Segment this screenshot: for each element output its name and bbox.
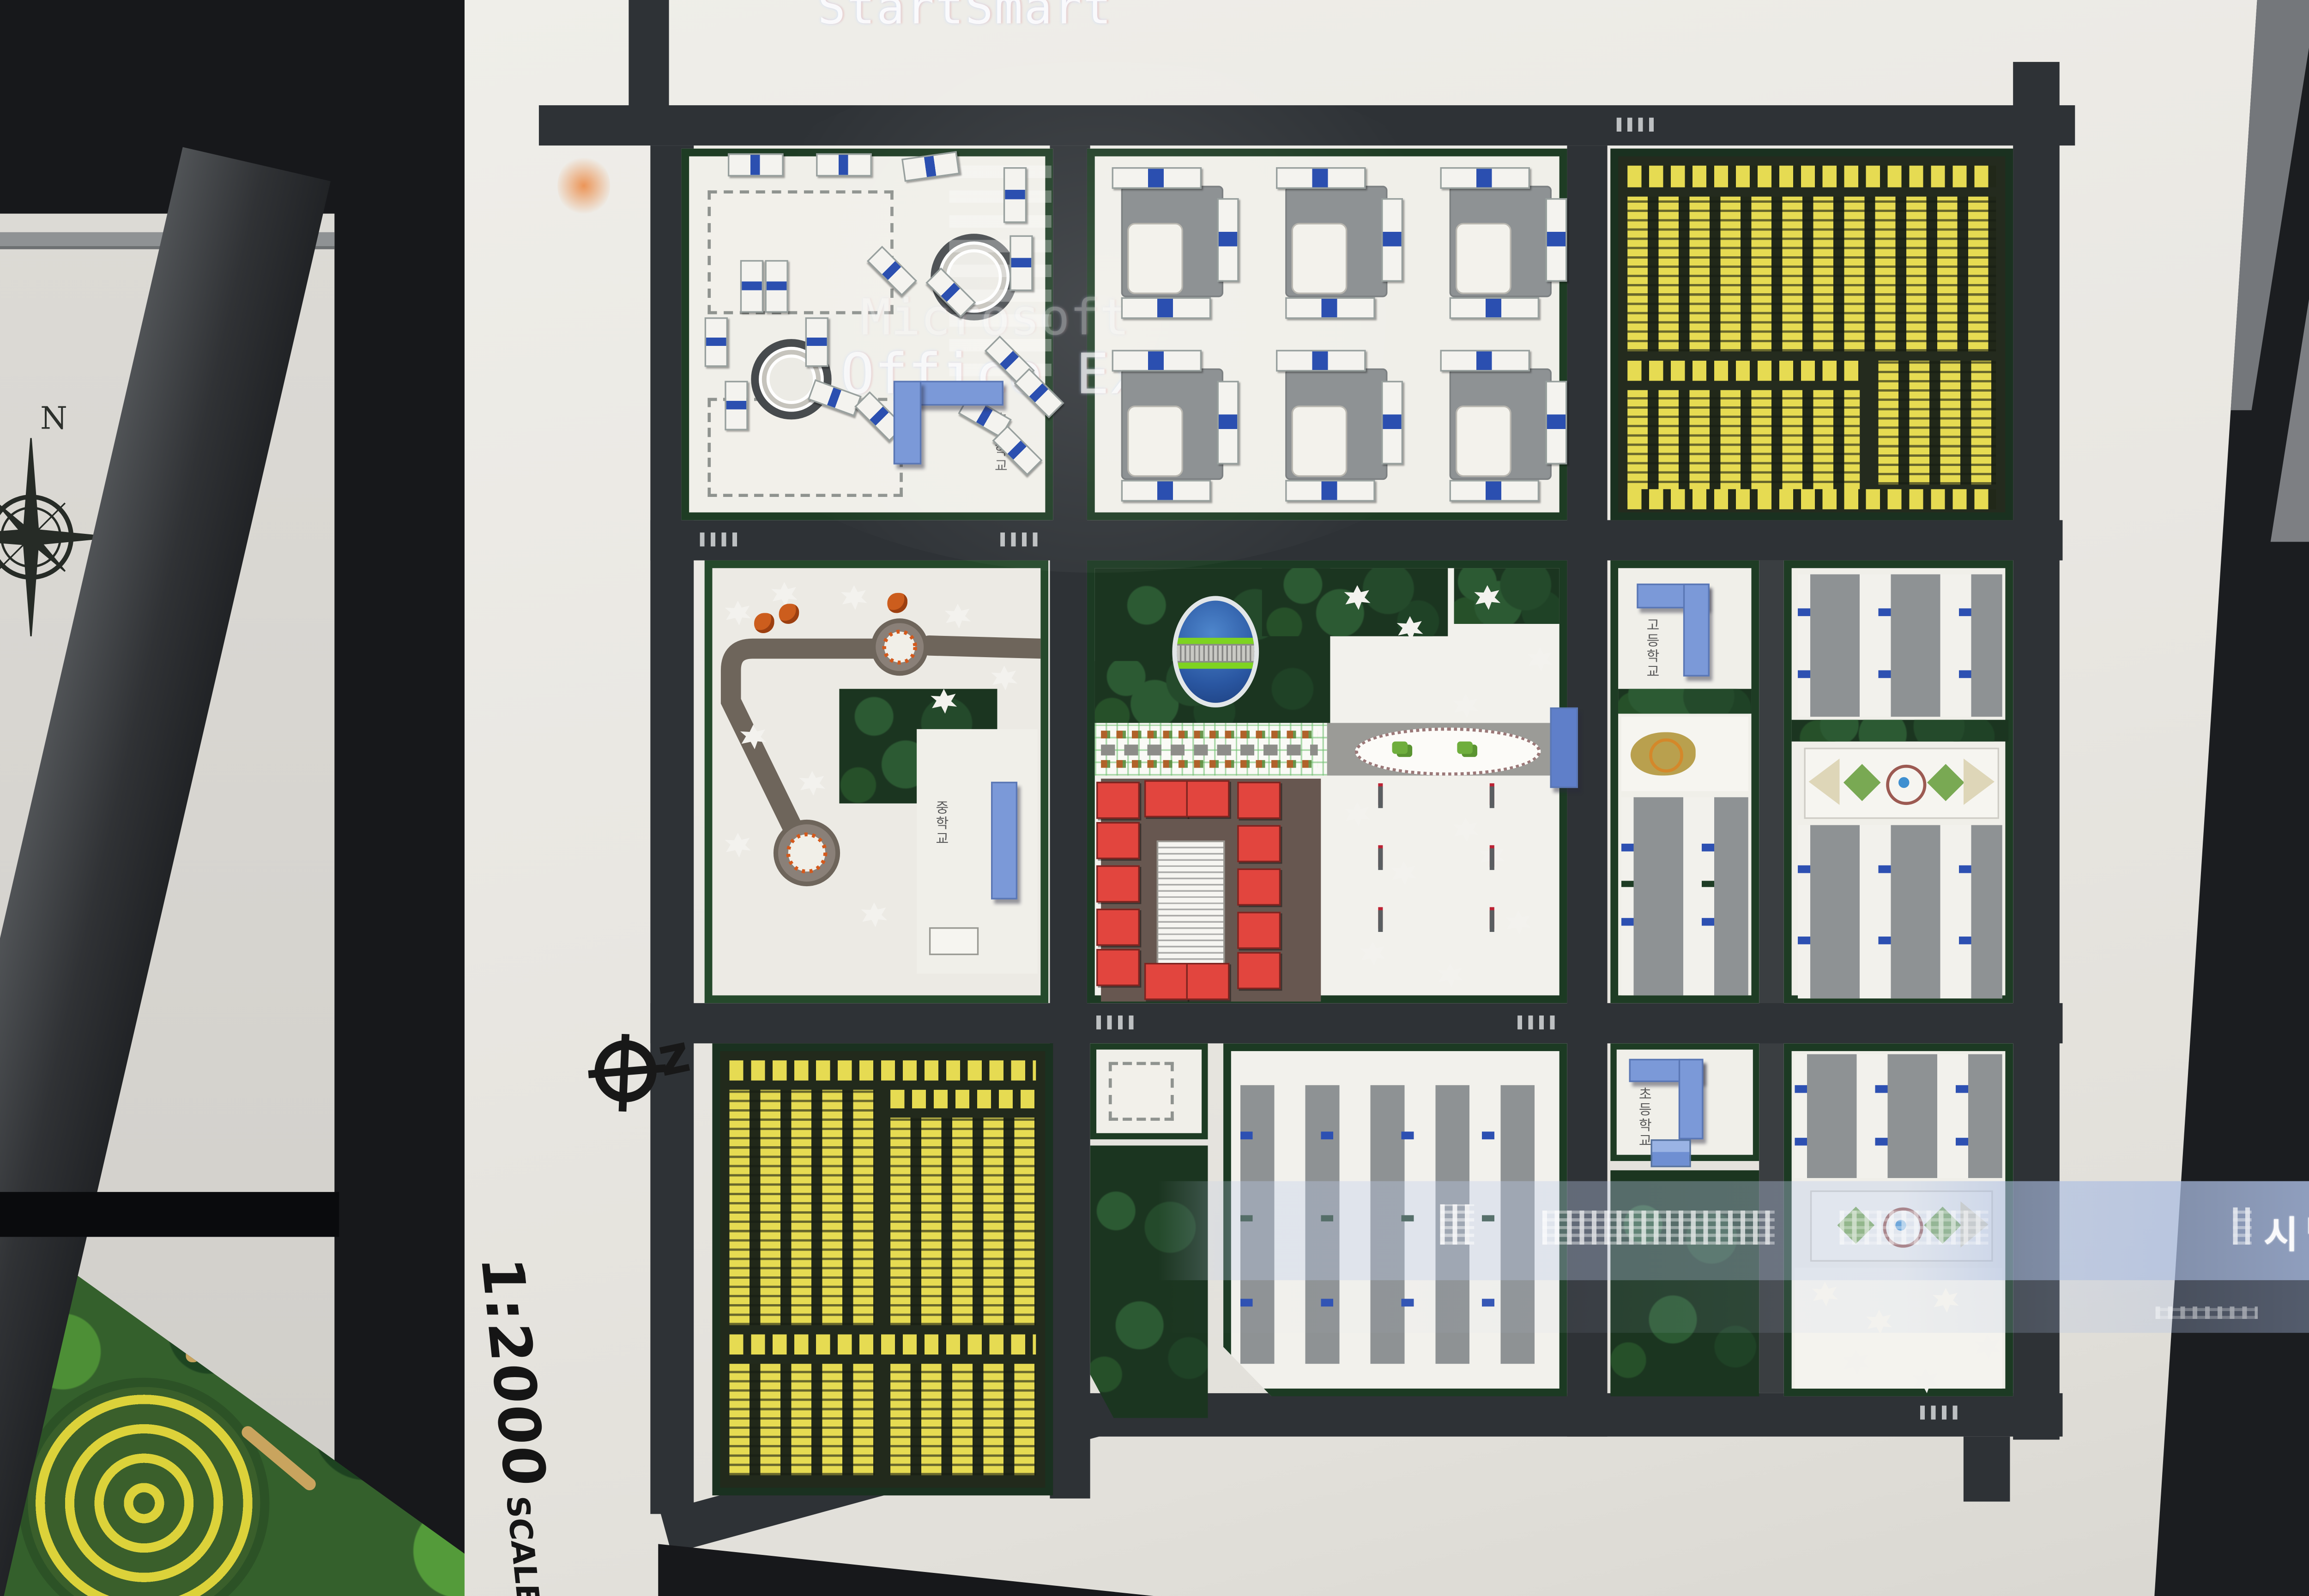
ticker-text: 시발표 <box>2264 1204 2309 1258</box>
red-building <box>1096 949 1140 986</box>
elementary-school-nw-building <box>913 381 1003 406</box>
pond-green-band <box>1174 638 1259 644</box>
housing-row <box>1627 361 1860 381</box>
high-school-label: 고등학교 <box>1643 617 1657 679</box>
projector-lens-glare <box>557 155 610 217</box>
factory-warehouse <box>1112 167 1202 189</box>
ticker-dashes <box>2156 1306 2258 1319</box>
factory-warehouse <box>1381 381 1403 465</box>
red-building <box>1096 865 1140 902</box>
apartments <box>1798 825 2002 998</box>
factory-warehouse <box>1217 198 1239 282</box>
road-stub-bottom-right <box>1964 1437 2010 1502</box>
apartment-balconies <box>1798 937 2002 944</box>
factory-warehouse <box>1450 297 1539 319</box>
red-building <box>1237 825 1281 862</box>
housing-strips <box>1878 361 1996 484</box>
campus-building <box>805 317 828 367</box>
crosswalk <box>1920 1406 1960 1420</box>
factory-warehouse <box>1381 198 1403 282</box>
table-edge <box>0 1192 339 1237</box>
blue-slab-building <box>1550 707 1578 788</box>
ticker-illegible-text <box>1542 1210 1775 1245</box>
ticker-icon <box>1440 1204 1474 1245</box>
lamp-post <box>1378 786 1383 808</box>
central-forest <box>1454 568 1559 624</box>
north-z-mark: z <box>653 1022 695 1088</box>
lamp-post <box>1378 910 1383 932</box>
ticker-illegible-text <box>1840 1210 1989 1245</box>
red-building <box>1186 963 1230 1000</box>
crosswalk <box>700 532 740 546</box>
housing-strips <box>890 1118 1036 1325</box>
small-hatched-building <box>1109 1062 1174 1121</box>
housing-row <box>729 1335 1036 1355</box>
campus-building <box>816 153 872 176</box>
apartment-balconies <box>1798 608 2002 616</box>
plaza-fountain <box>1898 777 1909 788</box>
factory-warehouse <box>1440 350 1529 372</box>
hedge-strip <box>1618 689 1751 714</box>
road-horizontal-2 <box>650 1003 2062 1043</box>
apartment-balconies <box>1798 670 2002 678</box>
blue-gable-building <box>1651 1139 1691 1167</box>
central-pond <box>1172 596 1259 707</box>
factory-courtyard <box>1292 405 1348 477</box>
factory-warehouse <box>1112 350 1202 372</box>
apartment-balconies <box>1798 865 2002 873</box>
north-symbol-icon: z <box>586 1019 713 1127</box>
red-building <box>1237 869 1281 906</box>
housing-strips <box>1627 390 1860 502</box>
lamp-post <box>1378 848 1383 870</box>
playground-lot <box>1621 717 1748 791</box>
boulevard-island <box>1355 727 1541 775</box>
apartment-balconies <box>1795 1085 2002 1093</box>
factory-courtyard <box>1292 223 1348 294</box>
housing-strips <box>729 1090 875 1325</box>
pond-bridge <box>1174 644 1259 662</box>
elementary-school-nw-building <box>894 381 921 465</box>
playground-ring <box>1649 738 1683 773</box>
red-building <box>1237 782 1281 819</box>
school-court <box>929 927 979 955</box>
red-building <box>1237 952 1281 989</box>
apartments <box>1621 797 1748 995</box>
housing-row <box>1627 166 1996 187</box>
block-east-2 <box>1784 560 2013 1003</box>
projection-line1: Microsoft <box>861 288 1129 346</box>
apartment-balconies <box>1621 918 1748 926</box>
campus-building <box>728 153 784 176</box>
crosswalk <box>1617 118 1657 132</box>
factory-warehouse <box>1545 381 1567 465</box>
factory-courtyard <box>1127 405 1183 477</box>
red-building <box>1144 963 1188 1000</box>
plaza-diamond <box>1927 764 1964 801</box>
red-building <box>1237 912 1281 949</box>
red-building <box>1186 780 1230 817</box>
middle-school-label: 중학교 <box>932 800 946 847</box>
high-school-building <box>1683 584 1710 677</box>
apartment-balconies <box>1795 1138 2002 1146</box>
housing-strips <box>890 1364 1036 1475</box>
red-building <box>1096 822 1140 859</box>
scale-word: SCALE <box>499 1496 548 1596</box>
promenade-planters <box>1101 760 1318 768</box>
block-housing-sw <box>712 1043 1053 1495</box>
housing-strips <box>729 1364 875 1475</box>
plaza-triangle <box>1964 759 1995 805</box>
diamond-plaza <box>1804 748 1999 819</box>
housing-row <box>1627 489 1996 509</box>
park-amphitheater-rings <box>28 1387 260 1596</box>
photo-viewport: N <box>0 0 2309 1596</box>
road-bottom <box>1084 1393 2062 1437</box>
lamp-post <box>1490 786 1494 808</box>
factory-courtyard <box>1127 223 1183 294</box>
block-small-lot <box>1090 1043 1208 1139</box>
plaza-diamond <box>1844 764 1881 801</box>
factory-warehouse <box>1440 167 1529 189</box>
campus-building <box>725 381 748 430</box>
apartments <box>1798 574 2002 717</box>
red-building <box>1144 780 1188 817</box>
plaza-triangle <box>1809 759 1840 805</box>
projection-reflection-band-fade <box>1158 1280 2309 1333</box>
block-east-1: 고등학교 <box>1610 560 1759 1003</box>
industrial-blue-ticks <box>1240 1131 1550 1139</box>
promenade <box>1095 723 1327 775</box>
middle-school-building <box>991 782 1017 900</box>
promenade-planters <box>1101 731 1318 738</box>
lamp-post <box>1490 848 1494 870</box>
campus-building <box>765 260 788 313</box>
factory-warehouse <box>1285 480 1375 502</box>
apartment-balconies <box>1621 844 1748 852</box>
factory-warehouse <box>1276 350 1366 372</box>
campus-building <box>705 317 728 367</box>
boulevard <box>1327 723 1575 775</box>
boulevard-planting <box>1392 742 1408 754</box>
campus-building <box>740 260 763 313</box>
factory-warehouse <box>1545 198 1567 282</box>
promenade-median <box>1101 744 1318 755</box>
campus-building <box>1009 236 1033 291</box>
crosswalk <box>1096 1016 1136 1029</box>
factory-warehouse <box>1285 297 1375 319</box>
projection-title: StartSmart <box>817 0 1112 36</box>
ticker-clipped-glyph <box>2233 1208 2251 1245</box>
lamp-post <box>1490 910 1494 932</box>
apartments <box>1795 1054 2002 1178</box>
housing-row <box>890 1090 1036 1108</box>
road-stub-top-left <box>629 0 669 118</box>
compass-north-letter: N <box>40 400 67 436</box>
photo-stage: N <box>0 0 2309 1596</box>
crosswalk <box>1517 1016 1558 1029</box>
factory-warehouse <box>1121 480 1211 502</box>
elementary-school-se-building <box>1679 1059 1704 1139</box>
apartment-hedge <box>1621 881 1748 887</box>
elementary-school-se-label: 초등학교 <box>1635 1087 1649 1149</box>
block-housing-ne <box>1610 149 2013 520</box>
block-school-se: 초등학교 <box>1610 1043 1759 1161</box>
middle-school-lot: 중학교 <box>917 729 1038 974</box>
boulevard-planting <box>1457 742 1473 754</box>
housing-strips <box>1627 197 1996 351</box>
factory-warehouse <box>1276 167 1366 189</box>
factory-courtyard <box>1456 405 1511 477</box>
housing-row <box>729 1060 1036 1081</box>
hedge-strip <box>1792 720 2008 742</box>
factory-courtyard <box>1456 223 1511 294</box>
red-building <box>1096 782 1140 819</box>
factory-warehouse <box>1450 480 1539 502</box>
campus-building <box>1003 167 1027 223</box>
red-building <box>1096 909 1140 946</box>
factory-warehouse <box>1121 297 1211 319</box>
pond-green-band <box>1174 663 1259 669</box>
factory-warehouse <box>1217 381 1239 465</box>
